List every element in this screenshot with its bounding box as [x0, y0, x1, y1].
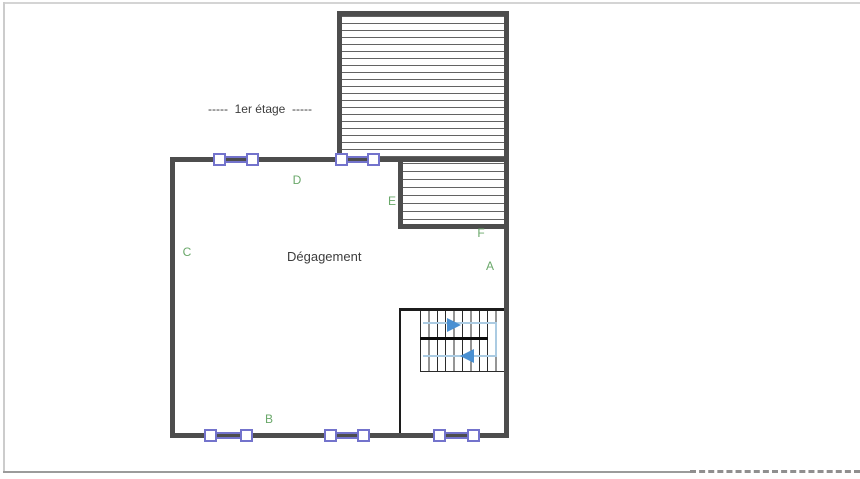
frame-bottom-line	[3, 471, 690, 473]
window-jamb	[213, 153, 226, 166]
window-jamb	[357, 429, 370, 442]
window-jamb	[204, 429, 217, 442]
floorplan-canvas: ----- 1er étage ----- Dégagement D E F C…	[0, 0, 860, 479]
wall-label-f: F	[473, 226, 489, 240]
wall-left	[170, 157, 175, 438]
room-label: Dégagement	[287, 249, 361, 264]
window-jamb	[367, 153, 380, 166]
window-jamb	[467, 429, 480, 442]
window	[204, 429, 253, 442]
window-jamb	[246, 153, 259, 166]
window-jamb	[240, 429, 253, 442]
wall-label-e: E	[384, 194, 400, 208]
frame-bottom-dashed-line	[690, 470, 860, 473]
stair-down-arrow-icon	[460, 349, 474, 363]
hatched-roof-area-top	[342, 16, 504, 157]
frame-top-line	[3, 2, 860, 4]
wall-roof-top	[337, 11, 509, 16]
frame-left-line	[3, 2, 5, 473]
window	[324, 429, 370, 442]
window	[335, 153, 380, 166]
floor-stage-label: ----- 1er étage -----	[198, 102, 322, 117]
wall-roof-side-left	[398, 157, 403, 229]
wall-roof-left	[337, 11, 342, 162]
wall-label-b: B	[261, 412, 277, 426]
wall-label-c: C	[179, 245, 195, 259]
window	[433, 429, 480, 442]
wall-label-a: A	[482, 259, 498, 273]
wall-roof-side-bottom	[398, 224, 509, 229]
window-jamb	[335, 153, 348, 166]
stair-enclosure-left-wall	[399, 308, 401, 433]
stair-up-arrow-icon	[447, 318, 461, 332]
window	[213, 153, 259, 166]
window-jamb	[324, 429, 337, 442]
hatched-roof-area-side	[403, 163, 504, 223]
window-jamb	[433, 429, 446, 442]
wall-label-d: D	[289, 173, 305, 187]
